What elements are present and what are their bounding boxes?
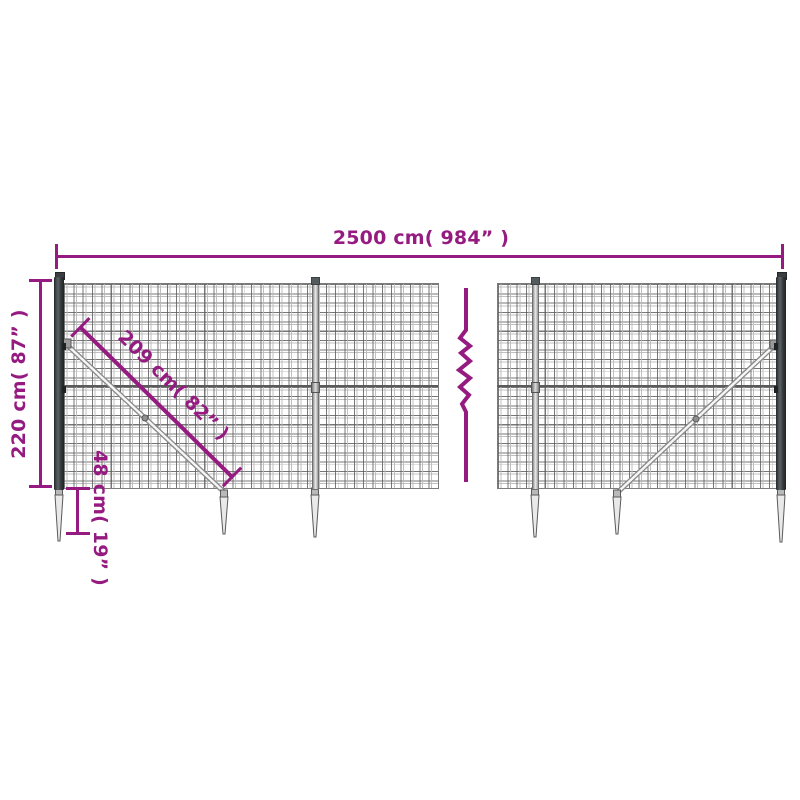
corner-post-left-clamp-lower <box>62 386 66 393</box>
spike-blade <box>777 495 785 542</box>
corner-post-right-clamp-lower <box>774 386 778 393</box>
dimension-total-width-tick-left <box>55 244 58 269</box>
dimension-spike-depth-line <box>76 489 79 534</box>
spike-blade <box>613 497 621 534</box>
ground-spike-brace-left <box>220 490 228 534</box>
brace-mid-fitting <box>142 415 148 421</box>
spike-blade <box>220 497 228 534</box>
ground-spike-right-post <box>777 488 785 542</box>
dimension-total-width-tick-right <box>781 244 784 269</box>
break-line-zigzag-icon <box>459 288 470 482</box>
dimension-spike-depth-tick-top <box>66 487 90 490</box>
intermediate-post-2-connector <box>531 382 540 393</box>
spike-collar <box>221 490 228 497</box>
corner-post-left-clamp-upper <box>62 343 66 350</box>
fence-hardware-layer <box>0 0 800 800</box>
diagonal-brace-right <box>618 340 779 492</box>
spike-blade <box>311 495 319 537</box>
dimension-spike-depth-label: 48 cm( 19” ) <box>89 450 111 586</box>
corner-post-right-clamp-upper <box>774 343 778 350</box>
dimension-total-height-tick-top <box>29 279 52 282</box>
dimension-total-height-tick-bottom <box>29 485 52 488</box>
spike-collar <box>614 490 621 497</box>
dimension-total-height-line <box>39 281 42 487</box>
intermediate-post-1-connector <box>311 382 320 393</box>
intermediate-post-1-cap <box>311 277 320 285</box>
intermediate-post-2-cap <box>531 277 540 285</box>
dimension-total-width-line <box>57 255 783 258</box>
dimension-spike-depth-tick-bottom <box>66 532 90 535</box>
corner-post-left <box>54 277 64 490</box>
ground-spike-brace-right <box>613 490 621 534</box>
dimension-total-width-label: 2500 cm( 984” ) <box>333 227 509 249</box>
ground-spike-mid-post-2 <box>531 488 539 537</box>
dimension-total-height-label: 220 cm( 87” ) <box>8 309 30 458</box>
spike-blade <box>531 495 539 537</box>
fence-dimension-diagram: 2500 cm( 984” ) 220 cm( 87” ) 209 cm( 82… <box>0 0 800 800</box>
brace-mid-fitting <box>693 416 699 422</box>
corner-post-right <box>776 277 786 490</box>
ground-spike-mid-post-1 <box>311 488 319 537</box>
spike-blade <box>55 495 63 541</box>
ground-spike-left-post <box>55 488 63 541</box>
